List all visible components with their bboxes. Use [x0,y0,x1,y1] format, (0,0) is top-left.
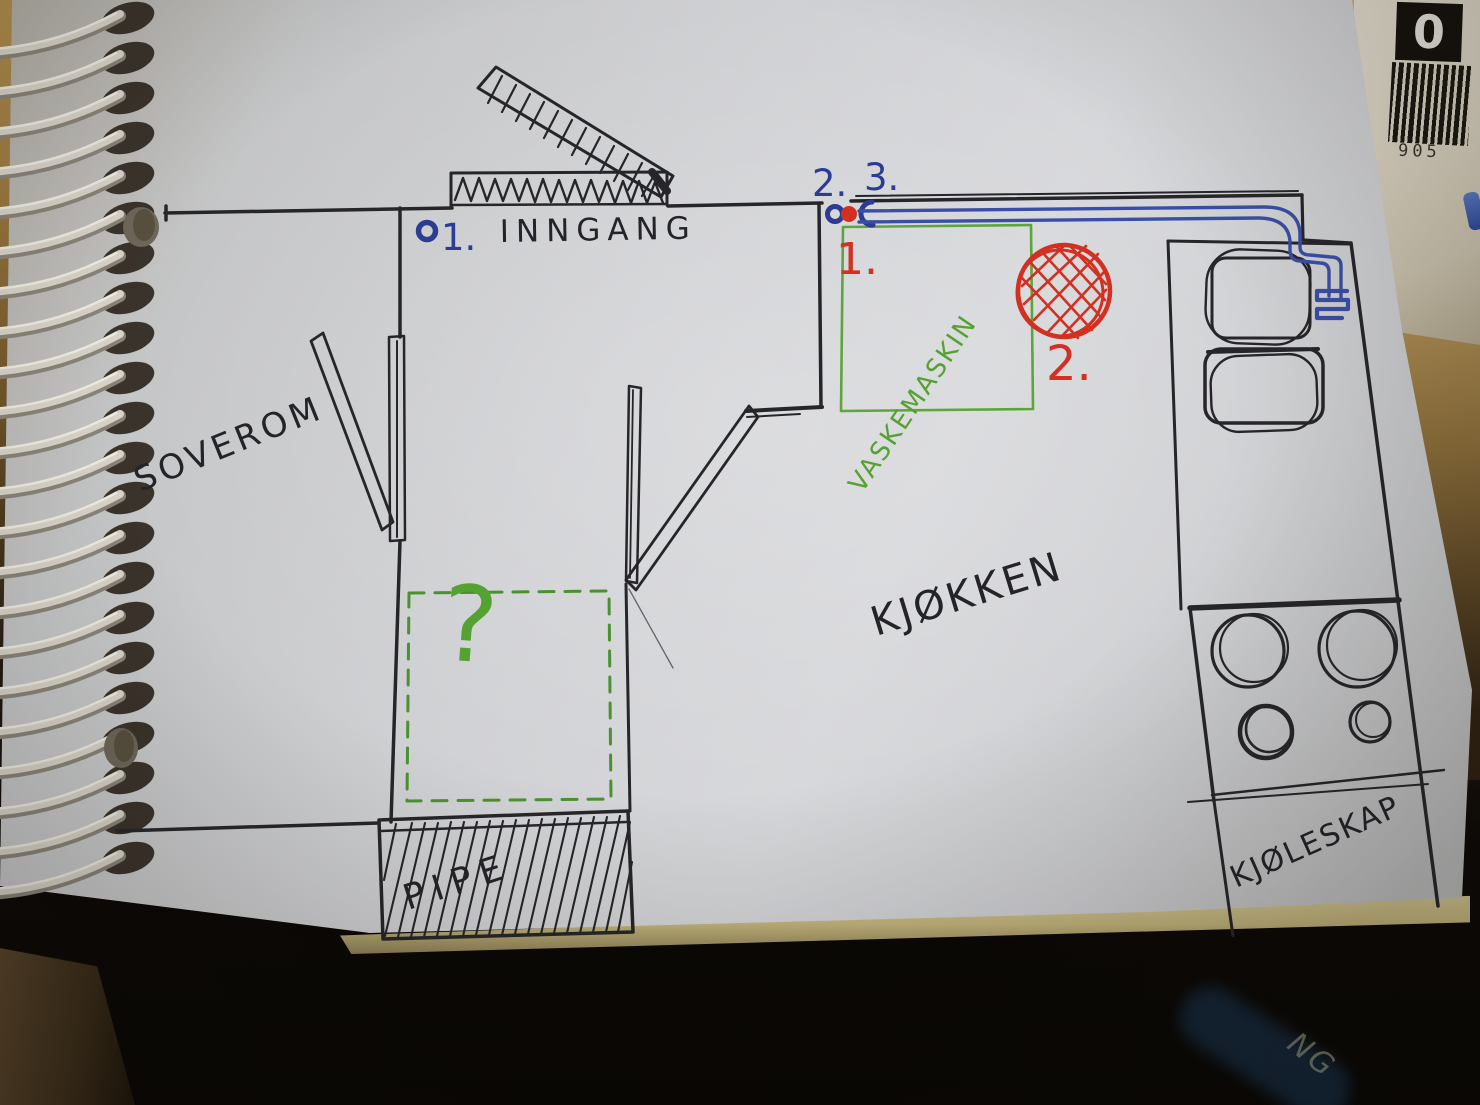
stove-top-edge [1190,600,1399,608]
blue-marker-2: 2. [812,162,847,205]
hall-wall-lower [391,541,400,822]
entrance-door-leaf [478,67,673,197]
burner-large-right [1319,611,1395,687]
red-marker-2: 2. [1046,336,1092,392]
top-wall-right [668,203,822,206]
washing-machine-label: VASKEMASKIN [843,310,984,498]
unknown-area-dashed-box [407,591,611,801]
blue-marker-3: 3. [864,156,899,199]
kitchen-door-jamb [626,386,641,583]
entrance-label: INNGANG [500,211,698,250]
punch-hole-shadow [133,209,155,241]
burner-small-left [1240,706,1292,758]
blue-marker-1: 1. [441,216,476,259]
floor-plan-sketch: INNGANG SOVEROM KJØKKEN PIPE KJØLESKAP V… [0,0,1480,1105]
wall-jog [1302,195,1351,243]
kitchen-point-icon [828,207,843,222]
notebook-photo: 0 905 [0,0,1480,1105]
bedroom-door-leaf [311,333,393,530]
kitchen-wall-vertical [819,204,821,407]
bedroom-label: SOVEROM [128,388,329,500]
pipe-coil-icon [1317,291,1348,318]
stove-burners [1188,600,1444,802]
pencil-guide-line [629,589,673,668]
kitchen-door-leaf [626,406,758,590]
red-marker-1: 1. [836,234,878,285]
entrance-door [451,67,673,206]
bedroom-bottom-wall [117,823,379,831]
hall-right-wall [626,584,630,811]
kitchen-label: KJØKKEN [865,544,1068,646]
sink-basin-1 [1212,258,1310,338]
top-wall-left [165,206,452,220]
fridge-label: KJØLESKAP [1225,789,1406,895]
walls-and-fixtures [117,67,1444,939]
entrance-point-icon [419,223,436,240]
question-mark-label: ? [438,562,502,688]
red-dot-icon [841,206,857,222]
green-annotations [407,225,1033,801]
kitchen-wall-horizontal [746,407,822,411]
sink-counter [1168,241,1350,609]
punch-hole-shadow [114,730,134,762]
